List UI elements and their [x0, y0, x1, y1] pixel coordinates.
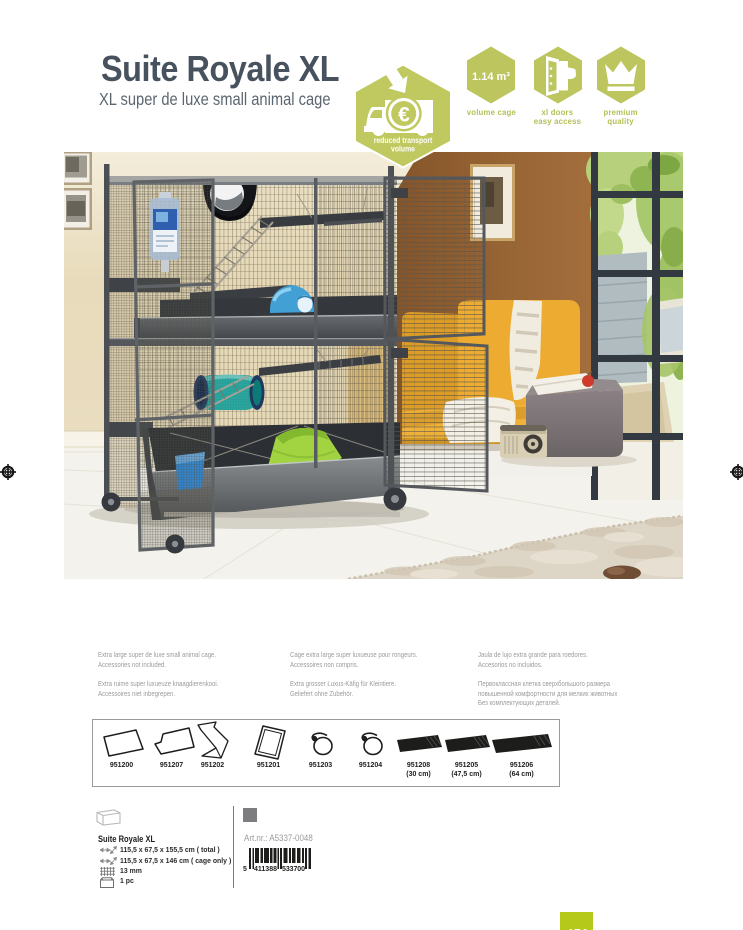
- svg-text:€: €: [398, 104, 410, 127]
- svg-text:411388: 411388: [254, 866, 277, 873]
- svg-text:1.14 m³: 1.14 m³: [472, 71, 510, 83]
- svg-text:5: 5: [243, 866, 247, 873]
- svg-text:533700: 533700: [282, 866, 305, 873]
- svg-text:volume: volume: [391, 144, 415, 154]
